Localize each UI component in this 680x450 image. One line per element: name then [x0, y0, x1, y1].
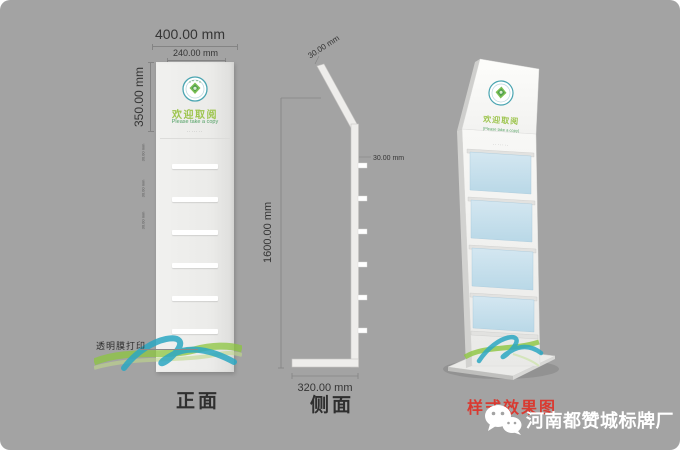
front-inner-width-dim: 240.00 mm	[153, 48, 238, 58]
front-outer-width-dim: 400.00 mm	[140, 26, 240, 42]
front-slot-2	[172, 197, 218, 202]
front-inner-dim-line	[167, 60, 226, 61]
side-view-drawing: 1600.00 mm 30.00 mm 30.00 mm 320.00 mm	[255, 35, 405, 420]
front-panel: 欢迎取阅 Please take a copy ·······	[156, 62, 234, 372]
watermark: 河南都赞城标牌厂	[484, 404, 674, 436]
render-3d-stand: 欢迎取阅 (Please take a copy) ·······	[435, 45, 595, 390]
side-view-caption: 侧面	[296, 390, 368, 417]
design-sheet: 400.00 mm 240.00 mm 350.00 mm 30.00 mm 3…	[0, 0, 680, 450]
side-slot-tab-dim: 30.00 mm	[373, 155, 404, 162]
side-vertical-bar	[351, 124, 359, 367]
front-micro-text: ·······	[156, 129, 234, 134]
green-leaf-emblem-icon	[182, 76, 208, 102]
watermark-text: 河南都赞城标牌厂	[526, 407, 674, 433]
front-header-dim-line	[150, 62, 151, 132]
front-swoosh-graphic	[94, 328, 242, 376]
front-slot-3	[172, 230, 218, 235]
side-slant-bar	[317, 64, 357, 128]
front-welcome-en: Please take a copy	[156, 119, 234, 125]
wechat-icon	[484, 404, 522, 436]
side-base-bar	[292, 359, 359, 367]
front-slot-1	[172, 164, 218, 169]
front-small-dim-3: 30.00 mm	[141, 208, 146, 234]
film-print-label: 透明膜打印	[96, 339, 146, 352]
front-small-dim-1: 30.00 mm	[141, 140, 146, 166]
front-slot-4	[172, 263, 218, 268]
front-header-divider	[160, 138, 230, 139]
side-height-dim: 1600.00 mm	[262, 202, 274, 263]
front-header-height-dim: 350.00 mm	[132, 66, 146, 128]
side-shelf-tabs	[358, 163, 367, 333]
front-slot-5	[172, 296, 218, 301]
film-print-leader-line	[140, 349, 198, 350]
side-top-thickness-dim: 30.00 mm	[306, 35, 341, 60]
render-micro-text: ·······	[493, 142, 510, 148]
front-outer-dim-line	[152, 46, 238, 47]
front-small-dim-2: 30.00 mm	[141, 176, 146, 202]
front-view-caption: 正面	[158, 386, 238, 413]
